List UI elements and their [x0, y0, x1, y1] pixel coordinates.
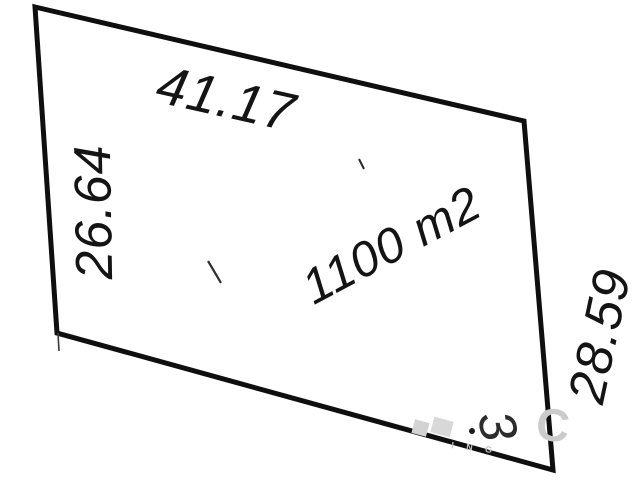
- watermark-logo-letter: C: [534, 400, 572, 449]
- parcel-sketch-canvas: 41.17 26.64 1100 m2 28.59 3 C I N G: [0, 0, 640, 480]
- dimension-label-left: 26.64: [67, 144, 121, 280]
- corner-tick-mark: [58, 333, 59, 351]
- stray-tick-mark-lower: [208, 261, 221, 283]
- stray-tick-mark-upper: [359, 159, 364, 169]
